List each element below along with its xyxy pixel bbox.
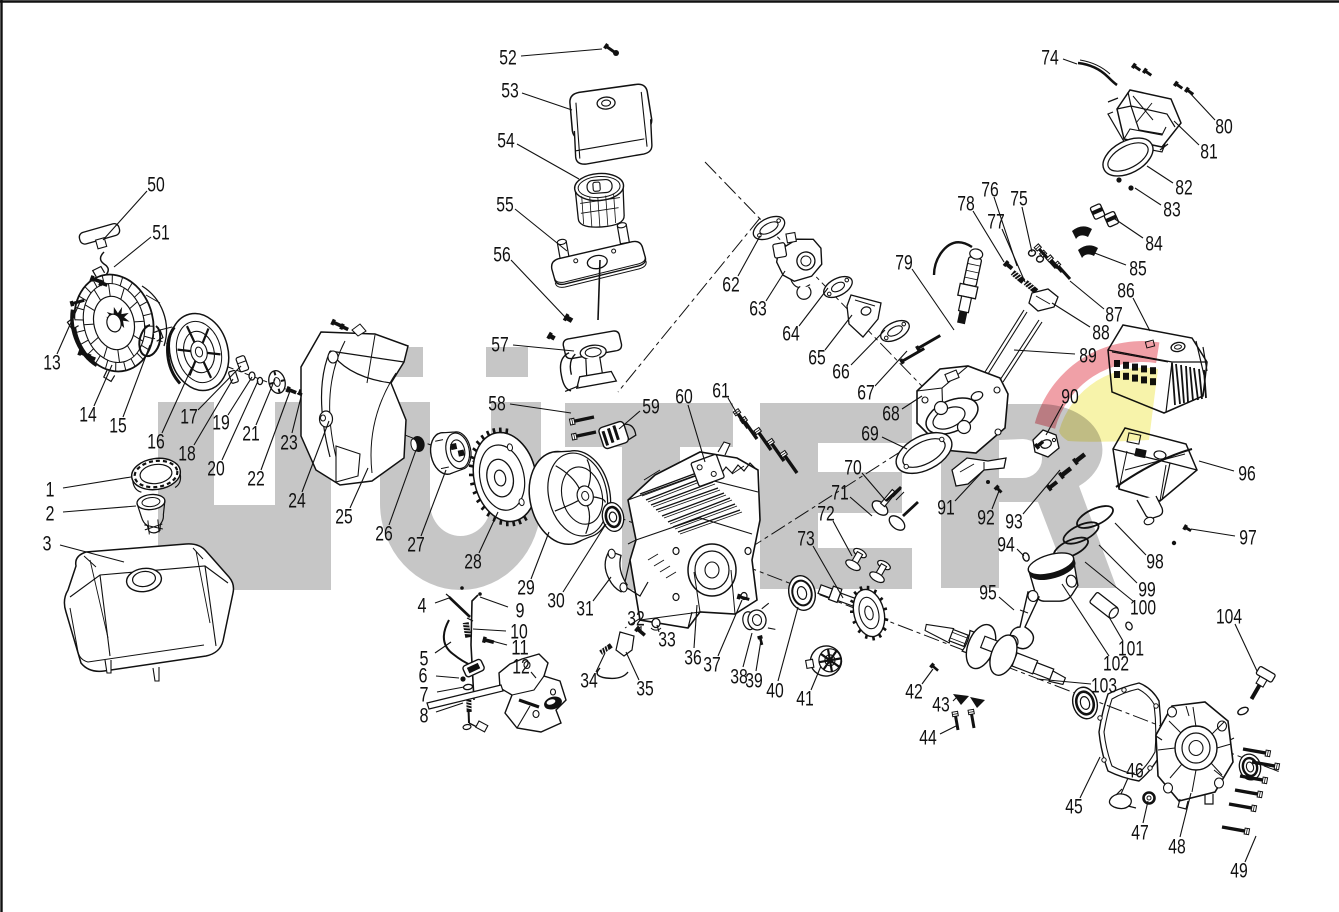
svg-text:98: 98	[1146, 550, 1164, 574]
svg-text:34: 34	[580, 669, 598, 693]
svg-text:59: 59	[642, 395, 660, 419]
svg-text:94: 94	[997, 533, 1015, 557]
svg-text:36: 36	[684, 646, 702, 670]
svg-text:14: 14	[79, 403, 97, 427]
svg-text:25: 25	[335, 505, 353, 529]
svg-text:37: 37	[703, 653, 721, 677]
svg-text:24: 24	[288, 489, 306, 513]
svg-text:26: 26	[375, 522, 393, 546]
svg-text:85: 85	[1129, 257, 1147, 281]
svg-text:56: 56	[493, 243, 511, 267]
svg-text:53: 53	[501, 79, 519, 103]
svg-text:52: 52	[499, 46, 517, 70]
svg-text:28: 28	[464, 550, 482, 574]
svg-text:42: 42	[905, 680, 923, 704]
svg-text:35: 35	[636, 677, 654, 701]
svg-text:76: 76	[981, 178, 999, 202]
svg-text:68: 68	[882, 402, 900, 426]
svg-text:64: 64	[782, 322, 800, 346]
svg-text:4: 4	[418, 594, 427, 618]
svg-text:91: 91	[937, 496, 955, 520]
svg-text:67: 67	[857, 381, 875, 405]
svg-text:100: 100	[1130, 596, 1156, 620]
svg-text:93: 93	[1005, 510, 1023, 534]
svg-text:90: 90	[1061, 385, 1079, 409]
svg-text:48: 48	[1168, 835, 1186, 859]
svg-text:19: 19	[212, 411, 230, 435]
svg-text:51: 51	[152, 221, 170, 245]
svg-text:33: 33	[658, 628, 676, 652]
svg-text:102: 102	[1103, 652, 1129, 676]
svg-text:69: 69	[861, 422, 879, 446]
svg-text:89: 89	[1079, 344, 1097, 368]
svg-text:73: 73	[797, 527, 815, 551]
svg-text:80: 80	[1215, 115, 1233, 139]
svg-text:84: 84	[1145, 232, 1163, 256]
svg-text:41: 41	[796, 687, 814, 711]
svg-text:96: 96	[1238, 462, 1256, 486]
svg-text:50: 50	[147, 173, 165, 197]
svg-text:79: 79	[895, 251, 913, 275]
svg-text:72: 72	[817, 502, 835, 526]
svg-text:104: 104	[1216, 605, 1242, 629]
svg-text:66: 66	[832, 360, 850, 384]
svg-text:61: 61	[712, 379, 730, 403]
svg-text:40: 40	[766, 679, 784, 703]
svg-text:77: 77	[987, 210, 1005, 234]
svg-text:23: 23	[280, 431, 298, 455]
svg-text:92: 92	[977, 506, 995, 530]
svg-text:58: 58	[488, 392, 506, 416]
svg-text:57: 57	[491, 333, 509, 357]
svg-text:1: 1	[46, 478, 55, 502]
svg-text:103: 103	[1091, 674, 1117, 698]
svg-text:31: 31	[576, 597, 594, 621]
svg-text:13: 13	[43, 351, 61, 375]
svg-text:47: 47	[1131, 821, 1149, 845]
svg-text:86: 86	[1117, 279, 1135, 303]
svg-text:78: 78	[957, 192, 975, 216]
svg-text:27: 27	[407, 533, 425, 557]
svg-text:18: 18	[178, 442, 196, 466]
svg-text:43: 43	[932, 693, 950, 717]
svg-text:46: 46	[1126, 759, 1144, 783]
svg-text:70: 70	[844, 456, 862, 480]
svg-text:21: 21	[242, 422, 260, 446]
svg-text:17: 17	[180, 405, 198, 429]
svg-text:83: 83	[1163, 198, 1181, 222]
svg-text:88: 88	[1092, 321, 1110, 345]
svg-text:75: 75	[1010, 187, 1028, 211]
svg-text:22: 22	[247, 467, 265, 491]
svg-text:97: 97	[1239, 526, 1257, 550]
svg-text:32: 32	[627, 607, 645, 631]
svg-text:20: 20	[207, 457, 225, 481]
svg-text:95: 95	[979, 581, 997, 605]
svg-text:12: 12	[512, 655, 530, 679]
svg-text:30: 30	[547, 589, 565, 613]
svg-text:74: 74	[1041, 46, 1059, 70]
svg-text:81: 81	[1200, 140, 1218, 164]
svg-text:2: 2	[46, 502, 55, 526]
svg-text:55: 55	[496, 193, 514, 217]
svg-text:63: 63	[749, 297, 767, 321]
svg-text:39: 39	[745, 669, 763, 693]
svg-text:60: 60	[675, 385, 693, 409]
svg-text:16: 16	[147, 430, 165, 454]
svg-text:15: 15	[109, 414, 127, 438]
svg-text:44: 44	[919, 726, 937, 750]
svg-text:8: 8	[420, 704, 429, 728]
svg-text:54: 54	[497, 129, 515, 153]
svg-text:65: 65	[808, 346, 826, 370]
svg-text:49: 49	[1230, 859, 1248, 883]
svg-text:29: 29	[517, 576, 535, 600]
svg-text:3: 3	[43, 532, 52, 556]
svg-text:45: 45	[1065, 795, 1083, 819]
svg-text:62: 62	[722, 273, 740, 297]
svg-text:82: 82	[1175, 176, 1193, 200]
